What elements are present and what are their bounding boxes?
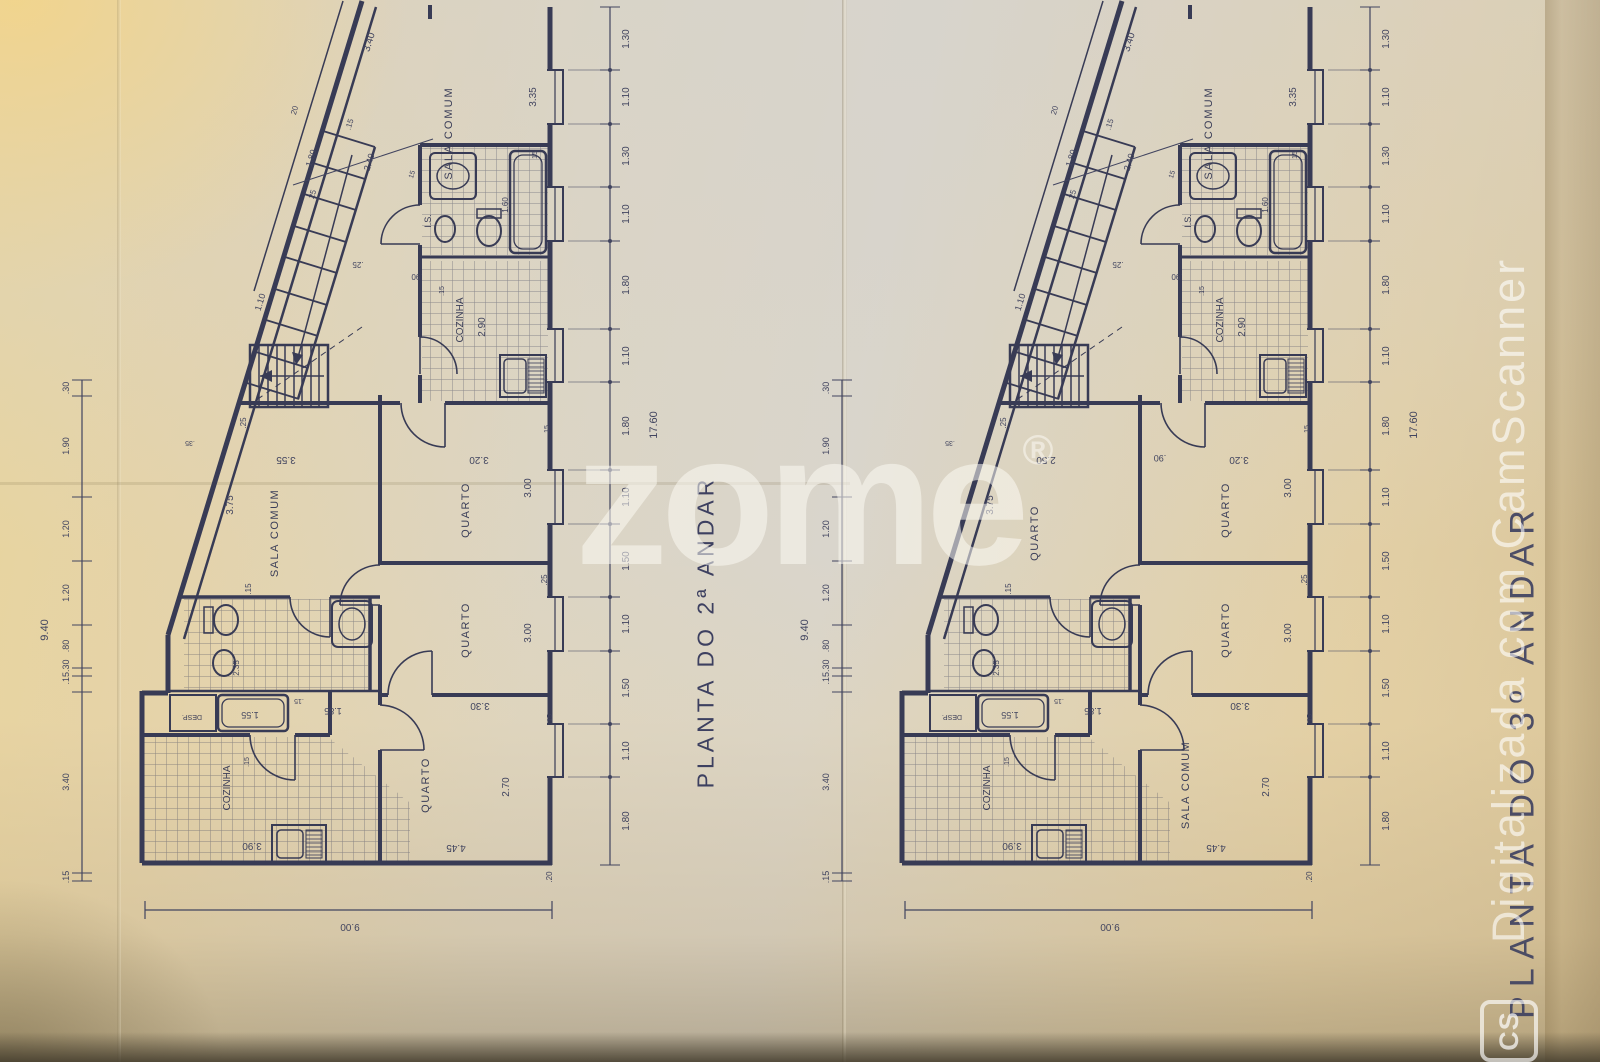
room-label-is-top: I.S. [423,214,433,228]
chain-label: 3.40 [61,773,71,791]
dim-label: .25 [1112,260,1124,269]
chain-total: 9.40 [39,619,51,640]
chain-label: .15.30 [61,659,71,684]
chain-label: 1.80 [1381,275,1392,295]
chain-label: 1.30 [1381,29,1392,49]
dim-label: 3.20 [469,454,489,465]
dim-label: .35 [185,439,195,446]
scanned-floorplan-page: { "page": { "watermark": "zome", "waterm… [0,0,1600,1062]
dim-label: .15 [244,757,251,767]
dim-label: 2.70 [501,777,512,797]
room-label-bottom: QUARTO [420,757,432,813]
dim-label: 3.40 [1122,31,1138,53]
dim-label: 3.30 [470,700,490,711]
chain-label: .80 [821,640,831,653]
chain-label: 1.10 [621,87,632,107]
dim-label: 2.35 [232,660,241,676]
dim-label: 3.35 [1288,87,1299,107]
chain-label: 1.10 [621,614,632,634]
chain-label: 1.90 [61,437,71,455]
zome-watermark: zome® [575,408,1053,594]
dim-label: .90 [411,272,423,281]
dim-label: 1.55 [241,710,259,720]
dim-label: .15 [1054,697,1064,704]
chain-label: 1.10 [1381,204,1392,224]
dim-label: 20 [289,104,300,116]
pantry-closet [930,695,976,731]
chain-total: 9.40 [799,619,811,640]
room-label-desp: DESP. [182,713,202,720]
room-label-desp: DESP. [942,713,962,720]
dim-label: 3.40 [362,31,378,53]
dim-label: 2.40 [1122,152,1137,172]
room-label-sala-comum-top: SALA COMUM [443,86,455,179]
dim-label: 3.00 [523,478,534,498]
dim-label: .25 [540,574,549,586]
chain-label: .80 [61,640,71,653]
dim-label: .15 [544,425,551,435]
registered-mark-icon: ® [1022,426,1053,473]
dim-label: 1.60 [501,197,510,213]
dim-label: .25 [352,260,364,269]
chain-total: 9.00 [340,921,360,932]
chain-label: 1.10 [621,346,632,366]
dim-label: .15 [1199,286,1206,296]
chain-label: .30 [61,382,71,395]
chain-label: 1.30 [621,146,632,166]
room-label-quarto-1: QUARTO [1220,482,1232,538]
chain-label: 1.80 [1381,416,1392,436]
paper-bottom-edge [0,1032,1600,1062]
chain-label: 1.30 [1381,146,1392,166]
chain-total: 9.00 [1100,921,1120,932]
chain-label: 1.10 [1381,346,1392,366]
room-label-quarto-2: QUARTO [460,602,472,658]
dim-label: .25 [239,417,248,429]
dim-label: .15 [1307,714,1314,724]
dimension-chain-bottom [905,901,1312,919]
chain-total: 17.60 [1408,411,1420,439]
room-label-mid: SALA COMUM [269,489,281,577]
chain-label: .15 [61,871,71,884]
dim-label: 2.90 [477,317,488,337]
dimension-chain-right [1328,7,1380,865]
room-label-cozinha-bottom: COZINHA [982,765,993,810]
dim-label: .90 [1154,453,1167,463]
chain-label: 1.10 [621,741,632,761]
room-label-cozinha-top: COZINHA [1215,297,1226,342]
dim-label: 3.30 [1230,700,1250,711]
chain-label: 1.10 [621,204,632,224]
chain-label: 1.50 [621,678,632,698]
tiled-floors [144,147,548,861]
dim-label: .15 [1304,425,1311,435]
dim-label: 2.90 [1237,317,1248,337]
dim-label: .15 [294,697,304,704]
room-label-cozinha-top: COZINHA [455,297,466,342]
room-label-bottom: SALA COMUM [1180,741,1192,829]
dim-label: .15 [547,714,554,724]
chain-label: 1.50 [1381,678,1392,698]
dim-label: 1.80 [304,148,319,168]
pantry-closet [170,695,216,731]
dim-label: 2.40 [362,152,377,172]
dim-label: 3.20 [1229,454,1249,465]
chain-label: .15 [821,871,831,884]
dim-label: 3.00 [1283,478,1294,498]
dimension-chain-left [72,380,92,881]
chain-label: 1.50 [1381,551,1392,571]
camscanner-watermark: Digitalizada com CamScanner [1483,257,1535,943]
dim-label: 2.70 [1261,777,1272,797]
dim-label: 20 [1049,104,1060,116]
camscanner-logo-icon: CS [1480,1000,1538,1062]
dim-label: .25 [1300,574,1309,586]
chain-label: 1.80 [1381,811,1392,831]
room-label-quarto-1: QUARTO [460,482,472,538]
chain-label: .30 [821,382,831,395]
dim-label: .15 [244,583,253,595]
chain-label: 1.10 [1381,741,1392,761]
walls [142,1,552,865]
dim-label: 1.60 [1261,197,1270,213]
room-label-quarto-2: QUARTO [1220,602,1232,658]
dim-label: 3.35 [528,87,539,107]
chain-label: 1.10 [1381,487,1392,507]
dim-label: 3.90 [242,840,262,851]
dim-label: .20 [1305,871,1314,883]
chain-label: 1.20 [61,520,71,538]
dim-label: .15 [344,117,356,131]
dim-label: .15 [1004,757,1011,767]
dim-label: 3.55 [276,454,296,465]
room-label-sala-comum-top: SALA COMUM [1203,86,1215,179]
room-label-is-top: I.S. [1183,214,1193,228]
chain-label: 1.30 [621,29,632,49]
chain-label: 1.10 [1381,614,1392,634]
dim-label: .20 [545,871,554,883]
room-label-cozinha-bottom: COZINHA [222,765,233,810]
chain-label: 1.80 [621,275,632,295]
chain-label: 3.40 [821,773,831,791]
dim-label: 1.55 [1001,710,1019,720]
chain-label: 1.80 [621,811,632,831]
dim-label: 4.45 [446,842,466,853]
paper-fold-right-strip [1545,0,1600,1062]
dim-label: 1.85 [1084,706,1102,716]
dim-label: 3.00 [523,623,534,643]
dim-label: 3.75 [225,495,236,515]
dim-label: 4.45 [1206,842,1226,853]
dimension-chain-bottom [145,901,552,919]
dim-label: 15 [532,151,539,159]
dim-label: 1.85 [324,706,342,716]
dim-label: .90 [1171,272,1183,281]
dim-label: 15 [408,170,417,180]
dim-label: .15 [1104,117,1116,131]
dim-label: 3.00 [1283,623,1294,643]
dim-label: 1.80 [1064,148,1079,168]
chain-label: 1.20 [61,584,71,602]
chain-label: .15.30 [821,659,831,684]
dim-label: 15 [1168,170,1177,180]
chain-label: 1.10 [1381,87,1392,107]
dim-label: 2.35 [992,660,1001,676]
dim-label: 15 [1292,151,1299,159]
dim-label: .15 [439,286,446,296]
dim-label: 3.90 [1002,840,1022,851]
